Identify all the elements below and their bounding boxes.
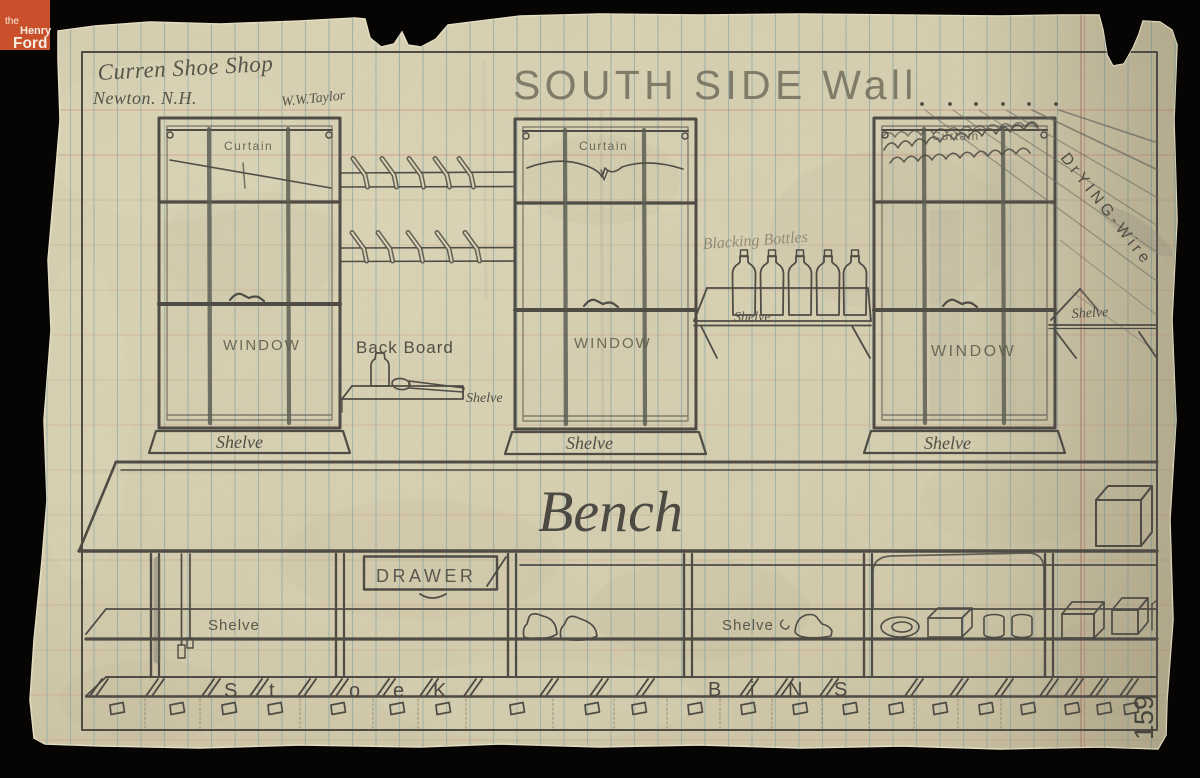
svg-text:Shelve: Shelve: [208, 617, 260, 634]
svg-text:e: e: [393, 680, 404, 702]
svg-text:Bench: Bench: [538, 479, 683, 544]
svg-text:Curtain: Curtain: [579, 139, 628, 153]
svg-text:Shelve: Shelve: [722, 617, 774, 634]
svg-text:WINDOW: WINDOW: [574, 335, 652, 352]
svg-text:Newton. N.H.: Newton. N.H.: [92, 88, 197, 108]
svg-text:t: t: [269, 680, 275, 702]
svg-text:Shelve: Shelve: [924, 433, 971, 453]
svg-text:K: K: [433, 680, 447, 702]
svg-text:Shelve: Shelve: [216, 432, 263, 452]
svg-text:S: S: [834, 679, 847, 701]
svg-text:Shelve: Shelve: [734, 310, 771, 325]
svg-text:WINDOW: WINDOW: [931, 343, 1016, 360]
svg-text:DRAWER: DRAWER: [376, 566, 476, 586]
svg-text:N: N: [788, 679, 802, 701]
svg-text:o: o: [349, 680, 360, 702]
svg-text:Shelve: Shelve: [1071, 305, 1108, 322]
svg-text:B: B: [708, 679, 721, 701]
svg-text:the: the: [5, 16, 19, 27]
svg-text:Shelve: Shelve: [566, 433, 613, 453]
svg-text:SOUTH SIDE Wall: SOUTH SIDE Wall: [513, 62, 918, 108]
svg-text:Curtain: Curtain: [224, 139, 273, 153]
svg-text:S: S: [224, 680, 237, 702]
svg-text:i: i: [750, 679, 754, 701]
svg-text:159: 159: [1129, 695, 1159, 740]
svg-text:Shelve: Shelve: [466, 391, 503, 406]
svg-text:WINDOW: WINDOW: [223, 337, 301, 354]
svg-text:Ford: Ford: [13, 35, 47, 52]
svg-text:Back Board: Back Board: [356, 338, 454, 357]
svg-text:Curtain: Curtain: [932, 131, 980, 143]
